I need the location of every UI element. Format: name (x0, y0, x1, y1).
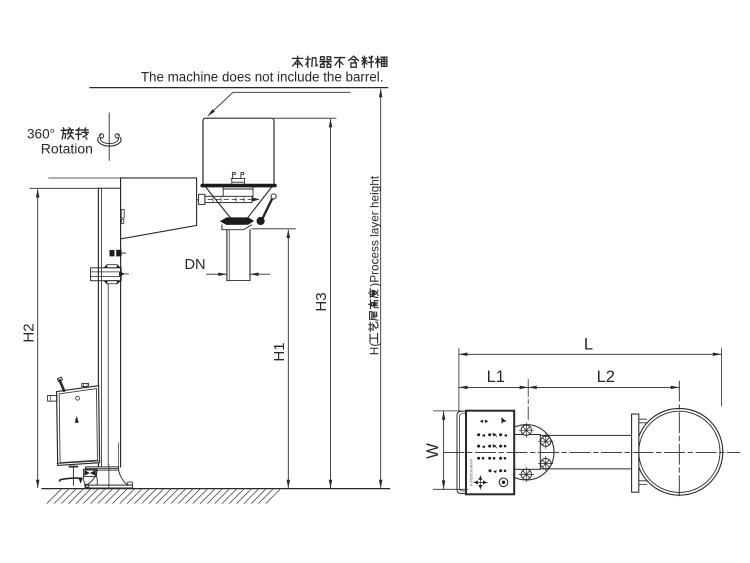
svg-text:W: W (424, 443, 442, 459)
svg-text:H(: H( (368, 343, 382, 356)
svg-text:L: L (584, 336, 593, 354)
svg-text:H2: H2 (21, 323, 38, 342)
svg-text:H1: H1 (271, 342, 288, 361)
svg-text:360°: 360° (27, 126, 55, 141)
svg-text:L2: L2 (597, 368, 615, 386)
svg-text:H-T5DG0609HTH: H-T5DG0609HTH (470, 458, 474, 486)
svg-text:DN: DN (185, 257, 206, 273)
svg-text:H3: H3 (313, 292, 330, 311)
svg-text:)Process layer height: )Process layer height (368, 175, 382, 287)
svg-text:Rotation: Rotation (41, 140, 93, 156)
svg-text:The machine does not include t: The machine does not include the barrel. (141, 70, 384, 85)
svg-text:L1: L1 (487, 368, 505, 386)
